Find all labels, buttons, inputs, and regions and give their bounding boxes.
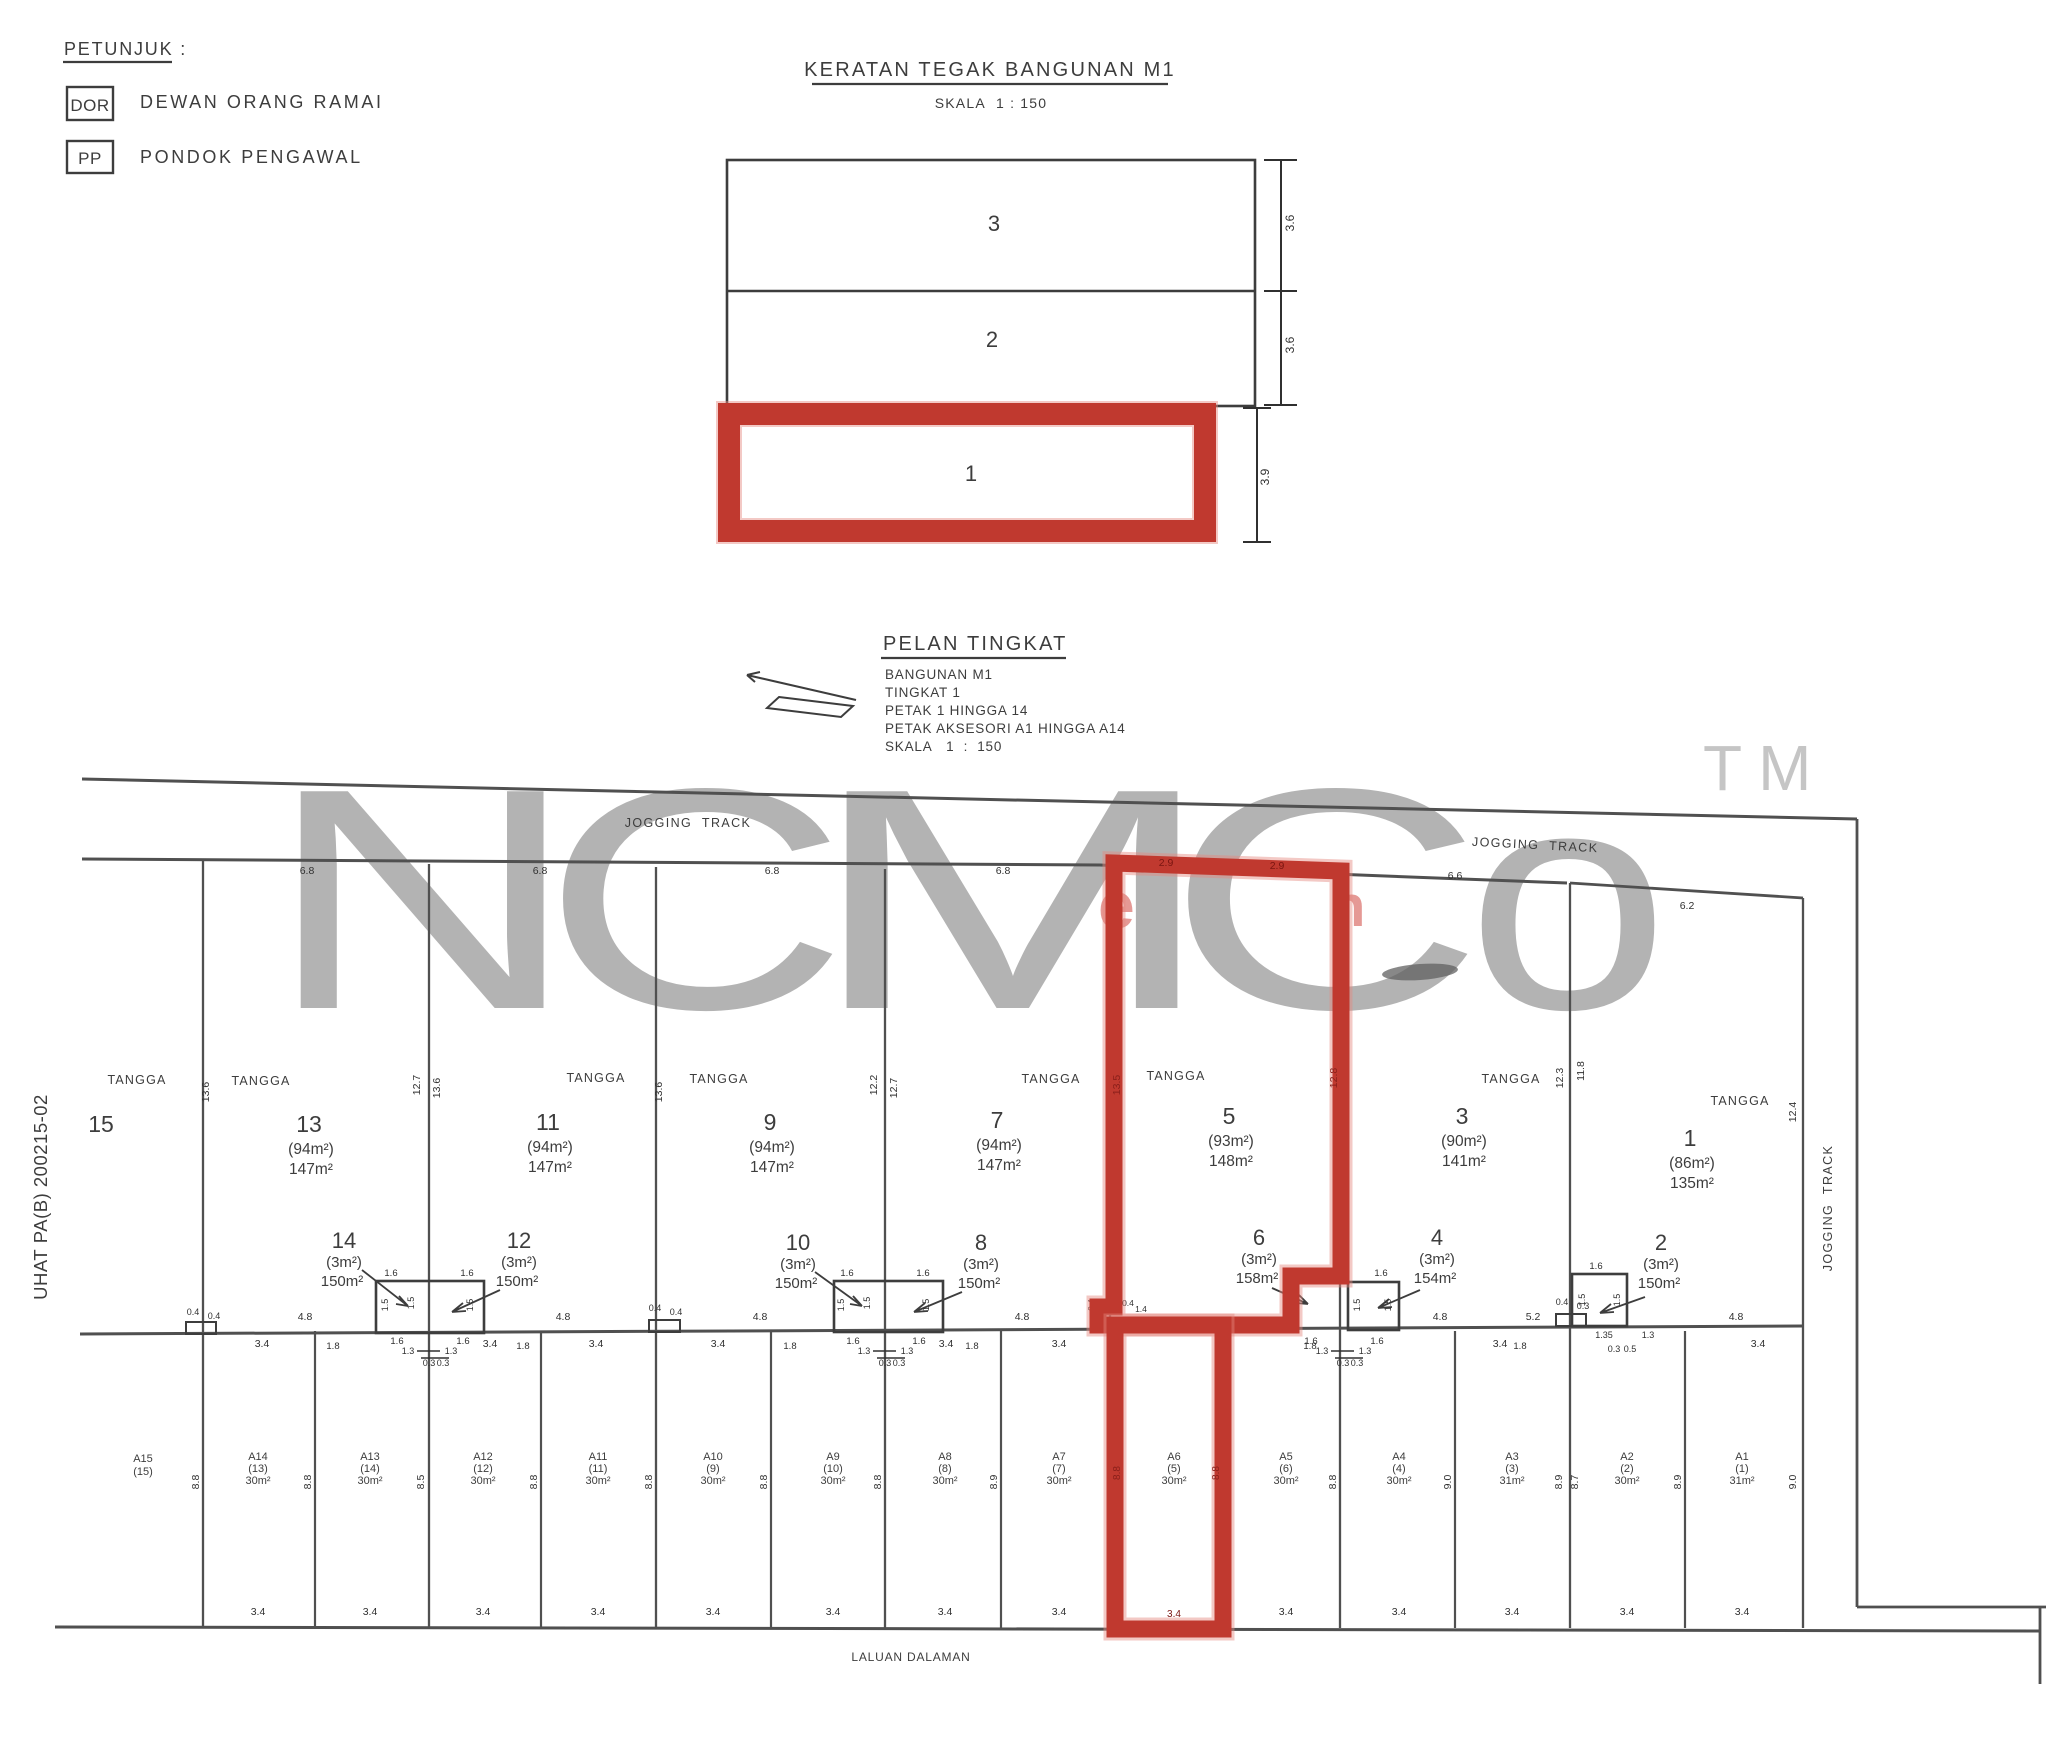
svg-text:1.6: 1.6 [460, 1268, 473, 1279]
svg-text:(94m²): (94m²) [527, 1139, 573, 1156]
svg-text:3.4: 3.4 [255, 1338, 270, 1350]
svg-text:1.3: 1.3 [901, 1346, 914, 1356]
svg-text:1.6: 1.6 [1370, 1336, 1383, 1347]
svg-text:A11: A11 [589, 1451, 608, 1463]
svg-text:TANGGA: TANGGA [1021, 1072, 1080, 1086]
svg-text:150m²: 150m² [775, 1275, 818, 1292]
svg-text:1.6: 1.6 [1374, 1268, 1387, 1279]
svg-text:(86m²): (86m²) [1669, 1155, 1715, 1172]
svg-text:11: 11 [536, 1109, 560, 1135]
svg-text:147m²: 147m² [750, 1159, 794, 1176]
svg-text:A5: A5 [1279, 1451, 1292, 1463]
svg-text:1.5: 1.5 [406, 1297, 416, 1310]
svg-text:158m²: 158m² [1236, 1270, 1279, 1287]
svg-text:3.6: 3.6 [1283, 336, 1297, 353]
svg-text:8.8: 8.8 [643, 1475, 655, 1490]
svg-text:12.3: 12.3 [1554, 1068, 1566, 1089]
svg-text:3.4: 3.4 [711, 1338, 726, 1350]
svg-text:A8: A8 [938, 1451, 951, 1463]
svg-text:1.3: 1.3 [1316, 1346, 1329, 1356]
svg-text:(3m²): (3m²) [1643, 1256, 1679, 1273]
svg-text:1.8: 1.8 [783, 1341, 796, 1352]
svg-text:30m²: 30m² [470, 1475, 495, 1487]
svg-text:1.8: 1.8 [326, 1341, 339, 1352]
svg-text:11.8: 11.8 [1575, 1061, 1587, 1081]
svg-text:6: 6 [1253, 1225, 1265, 1250]
svg-text:1.8: 1.8 [965, 1341, 978, 1352]
svg-text:0.4: 0.4 [1556, 1297, 1569, 1307]
svg-text:12.2: 12.2 [868, 1075, 880, 1096]
svg-text:30m²: 30m² [585, 1475, 610, 1487]
svg-text:(94m²): (94m²) [749, 1139, 795, 1156]
svg-text:A2: A2 [1620, 1451, 1633, 1463]
svg-text:1.6: 1.6 [840, 1268, 853, 1279]
svg-text:(93m²): (93m²) [1208, 1133, 1254, 1150]
svg-text:3.4: 3.4 [706, 1606, 721, 1618]
svg-text:1.5: 1.5 [1612, 1294, 1622, 1307]
svg-text:1.5: 1.5 [862, 1297, 872, 1310]
svg-text:1.35: 1.35 [1595, 1330, 1613, 1340]
svg-text:0.3: 0.3 [423, 1358, 436, 1368]
svg-text:3.4: 3.4 [1751, 1338, 1766, 1350]
svg-text:8: 8 [975, 1230, 987, 1255]
svg-text:(12): (12) [473, 1463, 493, 1475]
svg-text:3.4: 3.4 [1392, 1606, 1407, 1618]
svg-text:1.3: 1.3 [858, 1346, 871, 1356]
svg-text:M: M [806, 723, 1218, 1075]
svg-text:TANGGA: TANGGA [566, 1071, 625, 1085]
svg-text:TANGGA: TANGGA [1481, 1072, 1540, 1086]
svg-text:14: 14 [332, 1228, 356, 1253]
svg-text:4: 4 [1431, 1225, 1443, 1250]
svg-text:1.3: 1.3 [445, 1346, 458, 1356]
svg-text:3: 3 [1456, 1103, 1469, 1129]
svg-text:150m²: 150m² [321, 1273, 364, 1290]
svg-text:1.5: 1.5 [836, 1299, 846, 1312]
svg-text:SKALA 1 : 150: SKALA 1 : 150 [885, 739, 1002, 754]
svg-text:(94m²): (94m²) [976, 1137, 1022, 1154]
svg-text:1: 1 [965, 461, 977, 486]
svg-text:3.4: 3.4 [589, 1338, 604, 1350]
svg-text:C: C [541, 723, 848, 1075]
svg-text:(14): (14) [360, 1463, 380, 1475]
svg-text:(13): (13) [248, 1463, 268, 1475]
svg-text:0.4: 0.4 [670, 1307, 683, 1317]
svg-text:TANGGA: TANGGA [231, 1074, 290, 1088]
svg-text:13.6: 13.6 [200, 1082, 212, 1103]
svg-text:30m²: 30m² [820, 1475, 845, 1487]
svg-text:JOGGING TRACK: JOGGING TRACK [1821, 1145, 1835, 1272]
svg-text:(9): (9) [706, 1463, 719, 1475]
svg-text:30m²: 30m² [1614, 1475, 1639, 1487]
svg-text:7: 7 [991, 1107, 1004, 1133]
svg-text:JOGGING TRACK: JOGGING TRACK [625, 816, 752, 830]
svg-text:9.0: 9.0 [1442, 1475, 1454, 1490]
svg-text:8.5: 8.5 [415, 1475, 427, 1490]
svg-text:8.8: 8.8 [1211, 1466, 1222, 1480]
svg-text:12: 12 [507, 1228, 531, 1253]
svg-text:(3): (3) [1505, 1463, 1518, 1475]
svg-text:13.5: 13.5 [1111, 1075, 1123, 1096]
svg-text:6.8: 6.8 [996, 865, 1011, 877]
svg-text:6.8: 6.8 [300, 865, 315, 877]
svg-text:30m²: 30m² [1386, 1475, 1411, 1487]
svg-text:31m²: 31m² [1729, 1475, 1754, 1487]
svg-text:6.8: 6.8 [533, 865, 548, 877]
svg-text:(3m²): (3m²) [963, 1256, 999, 1273]
svg-text:PONDOK PENGAWAL: PONDOK PENGAWAL [140, 147, 363, 167]
svg-text:(3m²): (3m²) [780, 1256, 816, 1273]
svg-text:8.8: 8.8 [1112, 1466, 1123, 1480]
svg-text:(15): (15) [133, 1466, 153, 1478]
svg-text:o: o [1466, 724, 1669, 1076]
svg-text:3.4: 3.4 [939, 1338, 954, 1350]
svg-text:TANGGA: TANGGA [689, 1072, 748, 1086]
svg-text:0.3: 0.3 [879, 1358, 892, 1368]
svg-text:(94m²): (94m²) [288, 1141, 334, 1158]
svg-text:(11): (11) [589, 1463, 608, 1475]
svg-text:13.6: 13.6 [653, 1082, 665, 1103]
svg-text:1.5: 1.5 [1383, 1299, 1393, 1312]
svg-text:3.4: 3.4 [938, 1606, 953, 1618]
svg-text:4.8: 4.8 [298, 1311, 313, 1323]
svg-text:A4: A4 [1392, 1451, 1405, 1463]
svg-text:A7: A7 [1052, 1451, 1065, 1463]
svg-text:3.4: 3.4 [1505, 1606, 1520, 1618]
svg-text:31m²: 31m² [1499, 1475, 1524, 1487]
svg-text:148m²: 148m² [1209, 1153, 1253, 1170]
svg-text:3: 3 [988, 211, 1000, 236]
svg-text:9: 9 [764, 1109, 777, 1135]
svg-text:1.8: 1.8 [516, 1341, 529, 1352]
svg-text:12.4: 12.4 [1787, 1102, 1799, 1123]
svg-text:3.4: 3.4 [1620, 1606, 1635, 1618]
svg-text:3.6: 3.6 [1283, 214, 1297, 231]
svg-text:KERATAN TEGAK BANGUNAN M1: KERATAN TEGAK BANGUNAN M1 [804, 59, 1176, 81]
svg-text:3.4: 3.4 [1167, 1609, 1181, 1620]
svg-text:0.4: 0.4 [649, 1303, 662, 1313]
svg-text:30m²: 30m² [700, 1475, 725, 1487]
svg-text:A12: A12 [473, 1451, 493, 1463]
svg-text:3.4: 3.4 [1493, 1338, 1508, 1350]
svg-text:0.3: 0.3 [893, 1358, 906, 1368]
svg-text:TANGGA: TANGGA [107, 1073, 166, 1087]
svg-text:1.6: 1.6 [916, 1268, 929, 1279]
svg-text:1.4: 1.4 [1135, 1304, 1147, 1314]
svg-text:0.3: 0.3 [1577, 1301, 1590, 1311]
svg-text:UHAT PA(B) 200215-02: UHAT PA(B) 200215-02 [30, 1094, 51, 1300]
svg-text:1.6: 1.6 [1589, 1261, 1602, 1272]
svg-text:8.8: 8.8 [302, 1475, 314, 1490]
svg-text:1.6: 1.6 [384, 1268, 397, 1279]
svg-text:30m²: 30m² [1161, 1475, 1186, 1487]
svg-text:1.5: 1.5 [465, 1299, 475, 1312]
svg-text:PELAN TINGKAT: PELAN TINGKAT [883, 633, 1068, 655]
svg-text:6.6: 6.6 [1448, 870, 1463, 882]
svg-text:5.2: 5.2 [1526, 1311, 1541, 1323]
svg-text:4.8: 4.8 [556, 1311, 571, 1323]
svg-text:A6: A6 [1167, 1451, 1180, 1463]
svg-text:6.2: 6.2 [1680, 900, 1695, 912]
svg-text:3.4: 3.4 [483, 1338, 498, 1350]
svg-text:1.5: 1.5 [1352, 1299, 1362, 1312]
svg-text:3.4: 3.4 [1279, 1606, 1294, 1618]
svg-text:1.6: 1.6 [912, 1336, 925, 1347]
svg-text:TINGKAT 1: TINGKAT 1 [885, 685, 961, 700]
svg-text:8.7: 8.7 [1569, 1475, 1581, 1490]
svg-text:1.3: 1.3 [1642, 1330, 1655, 1340]
svg-text:(7): (7) [1052, 1463, 1065, 1475]
svg-text:30m²: 30m² [357, 1475, 382, 1487]
svg-text:8.8: 8.8 [528, 1475, 540, 1490]
svg-text:10: 10 [786, 1230, 810, 1255]
svg-text:A15: A15 [133, 1453, 153, 1465]
svg-text:2.9: 2.9 [1159, 857, 1174, 869]
svg-text:TM: TM [1703, 732, 1827, 804]
svg-text:147m²: 147m² [977, 1157, 1021, 1174]
svg-text:3.9: 3.9 [1258, 468, 1272, 485]
svg-text:A1: A1 [1735, 1451, 1748, 1463]
svg-text:3.4: 3.4 [251, 1606, 266, 1618]
svg-text:1.5: 1.5 [921, 1299, 931, 1312]
svg-text:13: 13 [296, 1111, 322, 1137]
svg-text:PP: PP [78, 149, 102, 168]
svg-text:(8): (8) [938, 1463, 951, 1475]
svg-text:150m²: 150m² [496, 1273, 539, 1290]
svg-text:TANGGA: TANGGA [1146, 1069, 1205, 1083]
svg-text:BANGUNAN M1: BANGUNAN M1 [885, 667, 993, 682]
svg-text:4.8: 4.8 [1433, 1311, 1448, 1323]
svg-text:(4): (4) [1392, 1463, 1405, 1475]
svg-text:8.8: 8.8 [758, 1475, 770, 1490]
svg-text:30m²: 30m² [932, 1475, 957, 1487]
svg-text:3.4: 3.4 [826, 1606, 841, 1618]
svg-text:1.3: 1.3 [1359, 1346, 1372, 1356]
svg-text:0.5: 0.5 [1624, 1344, 1637, 1354]
svg-text:147m²: 147m² [528, 1159, 572, 1176]
svg-text:0.3: 0.3 [437, 1358, 450, 1368]
svg-text:SKALA 1 : 150: SKALA 1 : 150 [935, 95, 1048, 111]
svg-text:(3m²): (3m²) [1419, 1251, 1455, 1268]
svg-text:12.8: 12.8 [1328, 1068, 1340, 1089]
svg-text:(2): (2) [1620, 1463, 1633, 1475]
svg-text:4.8: 4.8 [1015, 1311, 1030, 1323]
svg-text:135m²: 135m² [1670, 1175, 1714, 1192]
svg-text:0.3: 0.3 [1351, 1358, 1364, 1368]
svg-text:DOR: DOR [70, 96, 109, 115]
svg-text:30m²: 30m² [1273, 1475, 1298, 1487]
svg-text:A10: A10 [703, 1451, 723, 1463]
svg-text:3.4: 3.4 [1735, 1606, 1750, 1618]
svg-text:4.8: 4.8 [1729, 1311, 1744, 1323]
svg-text:150m²: 150m² [1638, 1275, 1681, 1292]
svg-text:150m²: 150m² [958, 1275, 1001, 1292]
svg-text:(3m²): (3m²) [1241, 1251, 1277, 1268]
svg-text:1.5: 1.5 [380, 1299, 390, 1312]
svg-text:3.4: 3.4 [1052, 1338, 1067, 1350]
svg-text:4.8: 4.8 [753, 1311, 768, 1323]
svg-text:TANGGA: TANGGA [1710, 1094, 1769, 1108]
svg-text:15: 15 [88, 1111, 114, 1137]
svg-text:(90m²): (90m²) [1441, 1133, 1487, 1150]
svg-text:N: N [265, 723, 579, 1075]
svg-text:5: 5 [1223, 1103, 1236, 1129]
svg-text:(3m²): (3m²) [326, 1254, 362, 1271]
svg-text:8.9: 8.9 [1672, 1475, 1684, 1490]
svg-text:3.4: 3.4 [363, 1606, 378, 1618]
svg-text:147m²: 147m² [289, 1161, 333, 1178]
svg-text:3.4: 3.4 [476, 1606, 491, 1618]
svg-text:141m²: 141m² [1442, 1153, 1486, 1170]
svg-text:1.3: 1.3 [402, 1346, 415, 1356]
svg-text:9.0: 9.0 [1787, 1475, 1799, 1490]
svg-text:12.7: 12.7 [411, 1075, 423, 1096]
svg-text:(3m²): (3m²) [501, 1254, 537, 1271]
svg-text:A9: A9 [826, 1451, 839, 1463]
svg-text:PETUNJUK :: PETUNJUK : [64, 39, 187, 59]
svg-text:(1): (1) [1735, 1463, 1748, 1475]
svg-text:13.6: 13.6 [431, 1078, 443, 1099]
svg-text:0.3: 0.3 [1608, 1344, 1621, 1354]
svg-text:(10): (10) [823, 1463, 843, 1475]
svg-text:30m²: 30m² [245, 1475, 270, 1487]
svg-text:1.6: 1.6 [456, 1336, 469, 1347]
svg-text:3.4: 3.4 [1052, 1606, 1067, 1618]
svg-text:(6): (6) [1279, 1463, 1292, 1475]
svg-text:PETAK 1 HINGGA 14: PETAK 1 HINGGA 14 [885, 703, 1028, 718]
svg-text:LALUAN DALAMAN: LALUAN DALAMAN [851, 1650, 970, 1664]
svg-text:8.9: 8.9 [988, 1475, 1000, 1490]
svg-text:0.4: 0.4 [187, 1307, 200, 1317]
svg-text:1.8: 1.8 [1513, 1341, 1526, 1352]
svg-text:A14: A14 [248, 1451, 268, 1463]
svg-text:8.8: 8.8 [872, 1475, 884, 1490]
svg-text:0.4: 0.4 [208, 1311, 221, 1321]
svg-text:0.3: 0.3 [1337, 1358, 1350, 1368]
svg-text:12.7: 12.7 [888, 1078, 900, 1099]
svg-text:PETAK AKSESORI A1 HINGGA A14: PETAK AKSESORI A1 HINGGA A14 [885, 721, 1126, 736]
svg-text:(5): (5) [1167, 1463, 1180, 1475]
svg-text:1: 1 [1684, 1125, 1697, 1151]
svg-text:A3: A3 [1505, 1451, 1518, 1463]
svg-text:2: 2 [1655, 1230, 1667, 1255]
svg-text:154m²: 154m² [1414, 1270, 1457, 1287]
svg-text:3.4: 3.4 [591, 1606, 606, 1618]
svg-text:8.8: 8.8 [190, 1475, 202, 1490]
svg-text:DEWAN ORANG RAMAI: DEWAN ORANG RAMAI [140, 92, 384, 112]
svg-text:8.8: 8.8 [1327, 1475, 1339, 1490]
svg-text:8.9: 8.9 [1553, 1475, 1565, 1490]
svg-text:C: C [1166, 724, 1484, 1076]
svg-text:2.9: 2.9 [1270, 860, 1285, 872]
svg-text:2: 2 [986, 327, 998, 352]
svg-text:6.8: 6.8 [765, 865, 780, 877]
svg-text:A13: A13 [360, 1451, 380, 1463]
svg-text:30m²: 30m² [1046, 1475, 1071, 1487]
